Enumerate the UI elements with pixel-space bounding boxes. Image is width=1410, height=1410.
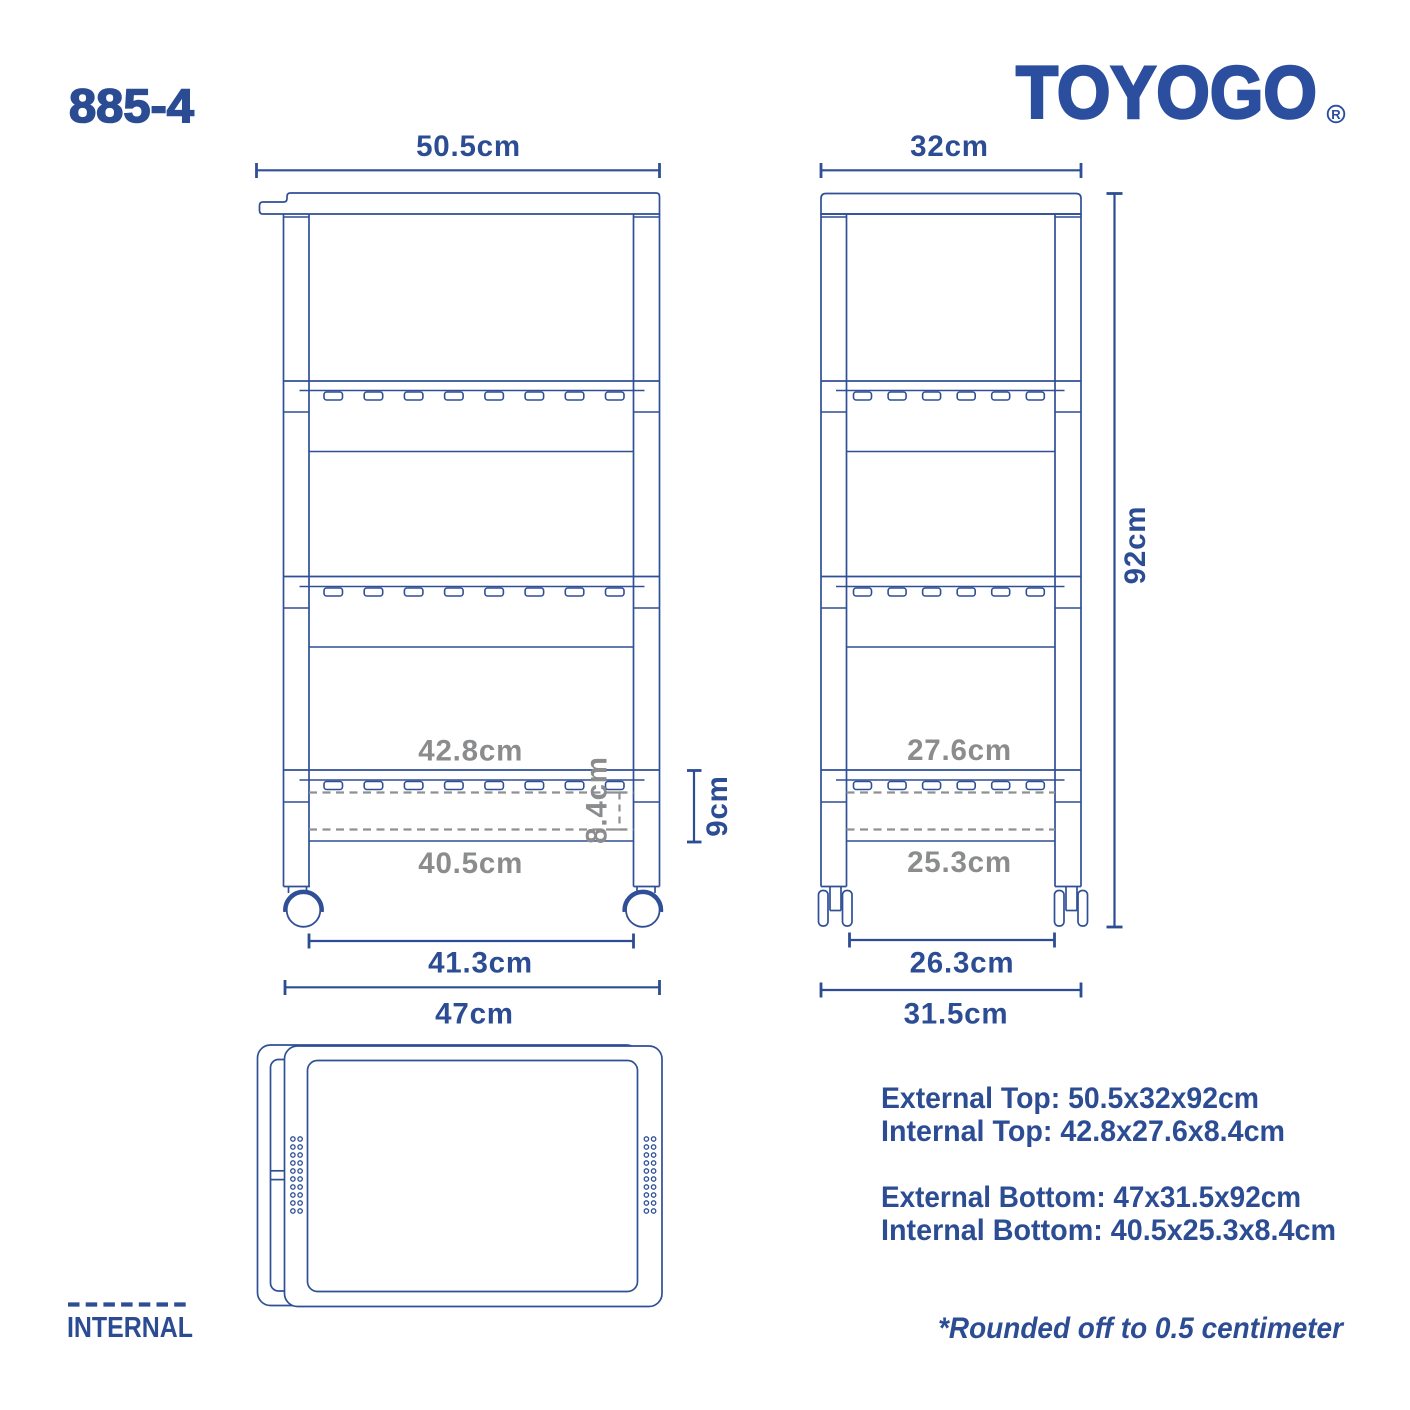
svg-text:25.3cm: 25.3cm [907, 846, 1012, 879]
svg-text:50.5cm: 50.5cm [416, 130, 521, 163]
svg-text:8.4cm: 8.4cm [581, 756, 614, 844]
svg-text:42.8cm: 42.8cm [418, 735, 523, 768]
svg-text:27.6cm: 27.6cm [907, 734, 1012, 767]
svg-text:32cm: 32cm [910, 130, 989, 163]
svg-text:9cm: 9cm [701, 775, 734, 836]
svg-text:R: R [1331, 107, 1341, 122]
svg-text:40.5cm: 40.5cm [418, 847, 523, 880]
svg-text:47cm: 47cm [435, 998, 514, 1031]
svg-text:Internal Top: 42.8x27.6x8.4cm: Internal Top: 42.8x27.6x8.4cm [881, 1115, 1285, 1148]
svg-text:885-4: 885-4 [69, 79, 194, 132]
svg-text:External Bottom: 47x31.5x92cm: External Bottom: 47x31.5x92cm [881, 1181, 1301, 1214]
svg-text:Internal Bottom: 40.5x25.3x8.4: Internal Bottom: 40.5x25.3x8.4cm [881, 1214, 1336, 1247]
svg-text:External Top: 50.5x32x92cm: External Top: 50.5x32x92cm [881, 1082, 1259, 1115]
svg-text:41.3cm: 41.3cm [428, 947, 533, 980]
svg-text:26.3cm: 26.3cm [910, 947, 1015, 980]
svg-text:TOYOGO: TOYOGO [1016, 51, 1317, 134]
svg-text:INTERNAL: INTERNAL [67, 1312, 193, 1344]
svg-text:92cm: 92cm [1119, 506, 1152, 585]
svg-text:*Rounded off to 0.5 centimeter: *Rounded off to 0.5 centimeter [938, 1312, 1344, 1345]
svg-text:31.5cm: 31.5cm [904, 998, 1009, 1031]
